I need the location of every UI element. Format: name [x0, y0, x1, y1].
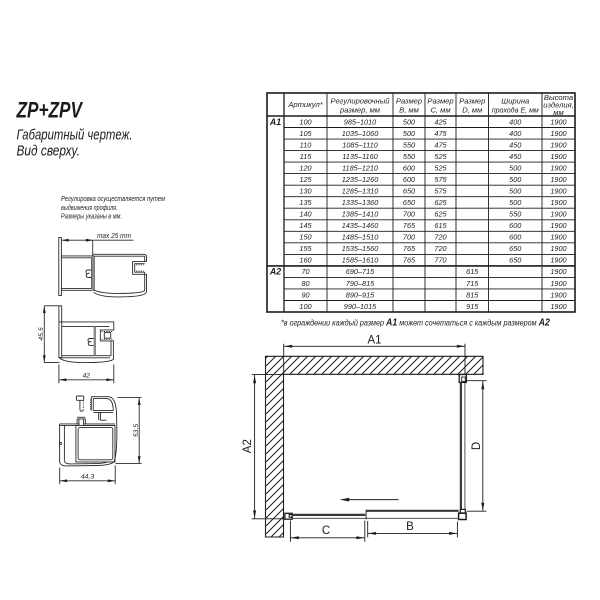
svg-text:А2: А2: [269, 267, 281, 277]
svg-text:D, мм: D, мм: [462, 105, 483, 114]
svg-text:1435–1460: 1435–1460: [342, 221, 379, 230]
svg-text:690–715: 690–715: [346, 267, 375, 276]
svg-text:500: 500: [509, 187, 521, 196]
svg-text:1335–1360: 1335–1360: [342, 198, 379, 207]
svg-text:100: 100: [299, 117, 311, 126]
svg-text:600: 600: [403, 164, 415, 173]
svg-text:625: 625: [434, 210, 447, 219]
svg-text:53,5: 53,5: [133, 424, 140, 437]
svg-text:600: 600: [509, 233, 521, 242]
svg-text:525: 525: [434, 164, 447, 173]
svg-text:Ширина: Ширина: [501, 97, 529, 106]
svg-text:1900: 1900: [550, 233, 566, 242]
svg-text:Размер: Размер: [396, 97, 422, 106]
svg-text:Артикул*: Артикул*: [287, 100, 323, 109]
svg-text:B: B: [406, 521, 414, 533]
svg-text:600: 600: [509, 221, 521, 230]
svg-text:145: 145: [299, 221, 312, 230]
svg-text:1285–1310: 1285–1310: [342, 187, 379, 196]
svg-text:915: 915: [466, 302, 479, 311]
svg-text:45,5: 45,5: [38, 327, 45, 340]
svg-text:770: 770: [434, 256, 446, 265]
svg-text:135: 135: [299, 198, 312, 207]
svg-text:размер, мм: размер, мм: [339, 105, 381, 114]
svg-text:765: 765: [403, 256, 416, 265]
svg-text:650: 650: [509, 256, 521, 265]
svg-text:1135–1160: 1135–1160: [342, 152, 377, 161]
svg-text:575: 575: [434, 175, 447, 184]
svg-text:400: 400: [509, 117, 521, 126]
svg-text:1085–1110: 1085–1110: [342, 140, 377, 149]
svg-text:815: 815: [466, 290, 479, 299]
svg-text:1900: 1900: [550, 267, 566, 276]
svg-text:1185–1210: 1185–1210: [342, 164, 378, 173]
svg-text:90: 90: [301, 290, 309, 299]
svg-text:Размер: Размер: [427, 97, 453, 106]
svg-text:мм: мм: [553, 108, 564, 117]
svg-text:Вид сверху.: Вид сверху.: [17, 144, 81, 160]
svg-text:1900: 1900: [550, 302, 566, 311]
svg-text:1900: 1900: [550, 140, 566, 149]
svg-text:1900: 1900: [550, 117, 566, 126]
svg-text:130: 130: [299, 187, 311, 196]
svg-text:A2: A2: [242, 439, 254, 453]
svg-text:1900: 1900: [550, 164, 566, 173]
svg-text:1900: 1900: [550, 210, 566, 219]
svg-text:1385–1410: 1385–1410: [342, 210, 379, 219]
svg-text:125: 125: [299, 175, 312, 184]
svg-text:650: 650: [509, 244, 521, 253]
svg-text:1235–1260: 1235–1260: [342, 175, 379, 184]
svg-text:550: 550: [509, 210, 521, 219]
svg-text:890–915: 890–915: [346, 290, 375, 299]
svg-text:1485–1510: 1485–1510: [342, 233, 379, 242]
svg-text:615: 615: [466, 267, 479, 276]
svg-text:700: 700: [403, 210, 415, 219]
svg-text:прохода Е, мм: прохода Е, мм: [492, 105, 540, 114]
svg-text:650: 650: [403, 198, 415, 207]
svg-text:990–1015: 990–1015: [344, 302, 377, 311]
svg-text:В, мм: В, мм: [399, 105, 419, 114]
svg-text:1900: 1900: [550, 187, 566, 196]
svg-text:140: 140: [299, 210, 311, 219]
svg-text:765: 765: [403, 221, 416, 230]
svg-text:100: 100: [299, 302, 311, 311]
svg-text:42: 42: [83, 372, 91, 379]
svg-text:A1: A1: [367, 335, 381, 347]
svg-text:790–815: 790–815: [346, 279, 375, 288]
svg-text:115: 115: [300, 152, 313, 161]
svg-text:70: 70: [301, 267, 309, 276]
svg-text:1585–1610: 1585–1610: [342, 256, 379, 265]
svg-text:1900: 1900: [550, 175, 566, 184]
svg-text:Габаритный чертеж.: Габаритный чертеж.: [17, 128, 133, 144]
svg-text:Размеры указаны в мм.: Размеры указаны в мм.: [61, 212, 122, 221]
svg-text:700: 700: [403, 233, 415, 242]
svg-text:1900: 1900: [550, 290, 566, 299]
svg-text:*в ограждении каждый размер А1: *в ограждении каждый размер А1 может соч…: [281, 316, 551, 328]
svg-text:600: 600: [403, 175, 415, 184]
svg-text:720: 720: [434, 244, 446, 253]
svg-text:Размер: Размер: [459, 97, 485, 106]
svg-text:500: 500: [509, 175, 521, 184]
svg-text:615: 615: [434, 221, 447, 230]
svg-text:max 25 mm: max 25 mm: [97, 231, 131, 240]
svg-text:400: 400: [509, 129, 521, 138]
svg-text:625: 625: [434, 198, 447, 207]
svg-text:C: C: [322, 525, 330, 537]
svg-text:44,3: 44,3: [81, 473, 94, 480]
svg-text:80: 80: [301, 279, 309, 288]
svg-text:1900: 1900: [550, 152, 566, 161]
svg-text:110: 110: [300, 140, 312, 149]
svg-text:160: 160: [299, 256, 311, 265]
svg-text:550: 550: [403, 140, 415, 149]
svg-text:765: 765: [403, 244, 416, 253]
svg-text:150: 150: [299, 233, 311, 242]
svg-text:450: 450: [509, 152, 521, 161]
svg-text:475: 475: [434, 140, 447, 149]
svg-text:650: 650: [403, 187, 415, 196]
svg-text:475: 475: [434, 129, 447, 138]
svg-text:D: D: [471, 442, 483, 450]
svg-text:120: 120: [299, 164, 311, 173]
svg-text:А1: А1: [269, 117, 281, 127]
svg-text:500: 500: [403, 129, 415, 138]
svg-text:715: 715: [466, 279, 479, 288]
svg-text:1900: 1900: [550, 256, 566, 265]
svg-text:Регулировочный: Регулировочный: [331, 97, 391, 106]
svg-text:1535–1560: 1535–1560: [342, 244, 379, 253]
svg-text:450: 450: [509, 140, 521, 149]
svg-text:1900: 1900: [550, 129, 566, 138]
svg-text:155: 155: [299, 244, 312, 253]
svg-text:1900: 1900: [550, 221, 566, 230]
svg-text:С, мм: С, мм: [430, 105, 451, 114]
svg-text:720: 720: [434, 233, 446, 242]
svg-text:525: 525: [434, 152, 447, 161]
svg-text:105: 105: [299, 129, 312, 138]
svg-text:425: 425: [434, 117, 447, 126]
svg-text:1900: 1900: [550, 244, 566, 253]
svg-text:985–1010: 985–1010: [344, 117, 376, 126]
svg-text:500: 500: [509, 164, 521, 173]
svg-text:500: 500: [509, 198, 521, 207]
svg-text:1900: 1900: [550, 279, 566, 288]
svg-text:500: 500: [403, 117, 415, 126]
svg-text:Регулировка осуществляется пут: Регулировка осуществляется путем: [61, 194, 166, 203]
svg-text:ZP+ZPV: ZP+ZPV: [16, 98, 84, 123]
svg-text:1035–1060: 1035–1060: [342, 129, 379, 138]
svg-text:575: 575: [434, 187, 447, 196]
svg-text:550: 550: [403, 152, 415, 161]
svg-text:1900: 1900: [550, 198, 566, 207]
